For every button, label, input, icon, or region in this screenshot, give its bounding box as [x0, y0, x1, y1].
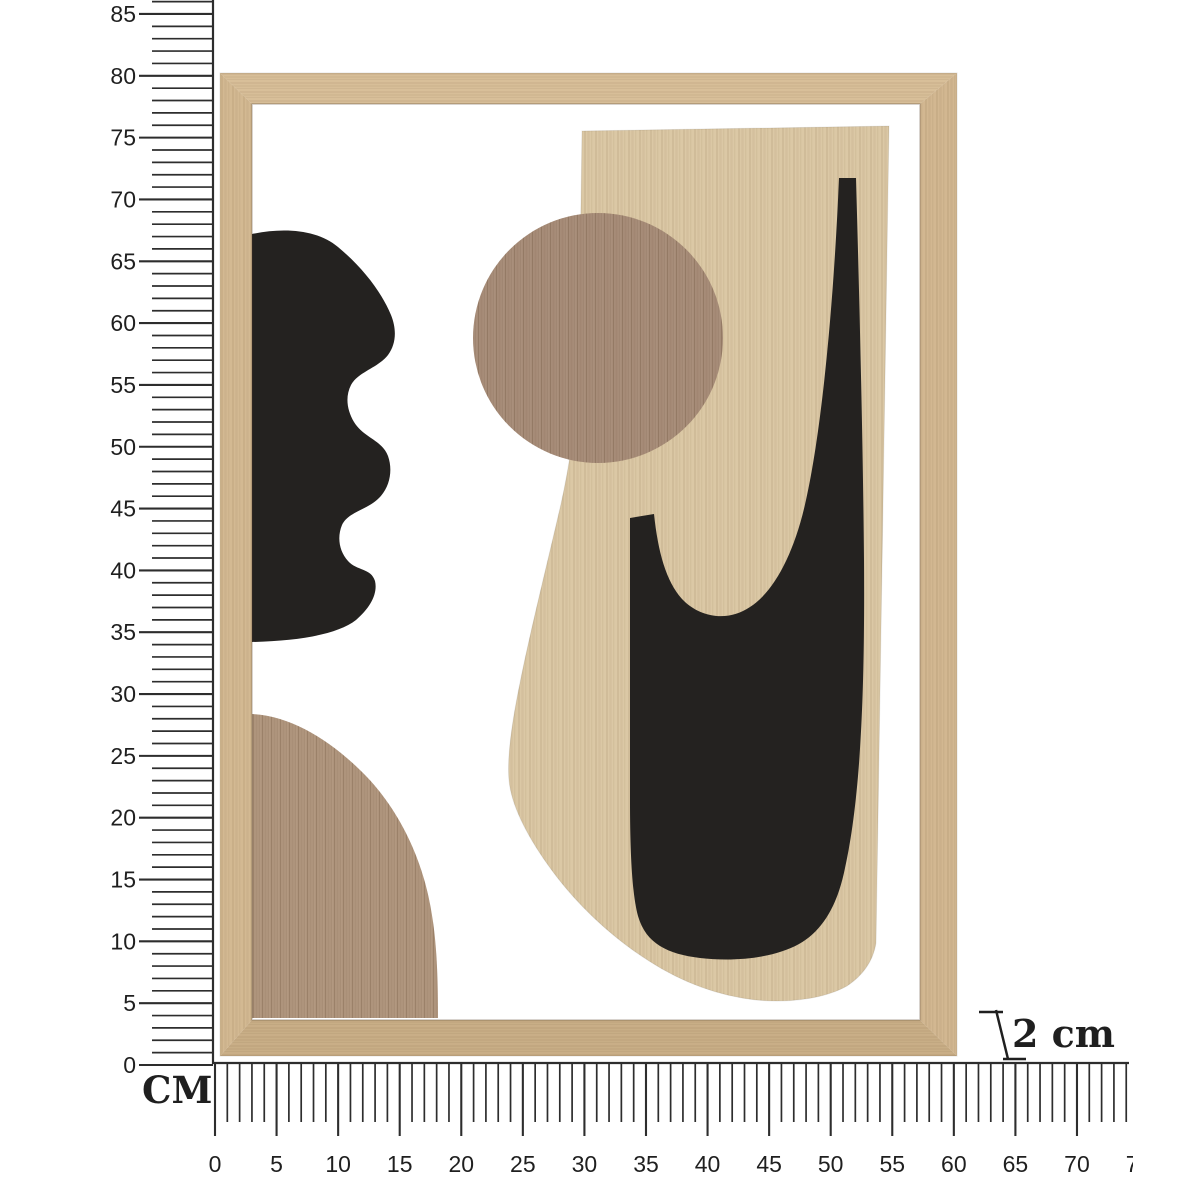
ruler-label: 70 [110, 186, 136, 212]
ruler-label: 20 [448, 1151, 474, 1177]
ruler-label: 15 [387, 1151, 413, 1177]
diagram-canvas: 8580757065605550454035302520151050 05101… [0, 0, 1200, 1200]
ruler-label: 10 [110, 928, 136, 954]
ruler-label: 60 [941, 1151, 967, 1177]
ruler-label: 0 [123, 1052, 136, 1078]
ruler-label: 15 [110, 867, 136, 893]
ruler-label: 65 [1003, 1151, 1029, 1177]
depth-indicator: 2 cm [979, 1010, 1115, 1059]
ruler-label: 45 [756, 1151, 782, 1177]
ruler-label: 35 [110, 619, 136, 645]
ruler-label: 75 [1126, 1151, 1152, 1177]
product-dimension-diagram: 8580757065605550454035302520151050 05101… [0, 0, 1200, 1200]
ruler-label: 5 [123, 990, 136, 1016]
ruler-label: 60 [110, 310, 136, 336]
ruler-label: 50 [110, 434, 136, 460]
frame-bottom-bar [220, 1020, 957, 1056]
frame-top-bar [220, 73, 957, 104]
ruler-label: 35 [633, 1151, 659, 1177]
ruler-label: 75 [110, 125, 136, 151]
ruler-label: 40 [695, 1151, 721, 1177]
ruler-label: 85 [110, 1, 136, 27]
wood-circle-shape [473, 213, 723, 463]
ruler-label: 70 [1064, 1151, 1090, 1177]
vertical-ruler [139, 0, 213, 1065]
horizontal-ruler-labels: 051015202530354045505560657075 [209, 1151, 1152, 1177]
frame-left-bar [220, 73, 252, 1056]
unit-label: CM [142, 1068, 212, 1112]
ruler-label: 30 [110, 681, 136, 707]
horizontal-ruler: 051015202530354045505560657075 [209, 1063, 1152, 1177]
vertical-ruler-labels: 8580757065605550454035302520151050 [110, 1, 136, 1078]
left-blob-shape [252, 230, 395, 642]
horizontal-ruler-ticks [215, 1063, 1126, 1136]
ruler-label: 45 [110, 496, 136, 522]
ruler-label: 80 [110, 63, 136, 89]
artwork [252, 126, 889, 1018]
ruler-label: 25 [110, 743, 136, 769]
vertical-ruler-ticks [139, 2, 213, 1065]
depth-label: 2 cm [1012, 1011, 1115, 1056]
ruler-label: 30 [572, 1151, 598, 1177]
ruler-label: 0 [209, 1151, 222, 1177]
ruler-label: 20 [110, 805, 136, 831]
ruler-label: 55 [879, 1151, 905, 1177]
ruler-label: 10 [325, 1151, 351, 1177]
ruler-label: 55 [110, 372, 136, 398]
ruler-label: 40 [110, 557, 136, 583]
ruler-label: 25 [510, 1151, 536, 1177]
ruler-label: 65 [110, 248, 136, 274]
frame-right-bar [920, 73, 957, 1056]
bottom-arch-shape [252, 714, 438, 1018]
ruler-label: 50 [818, 1151, 844, 1177]
ruler-label: 5 [270, 1151, 283, 1177]
